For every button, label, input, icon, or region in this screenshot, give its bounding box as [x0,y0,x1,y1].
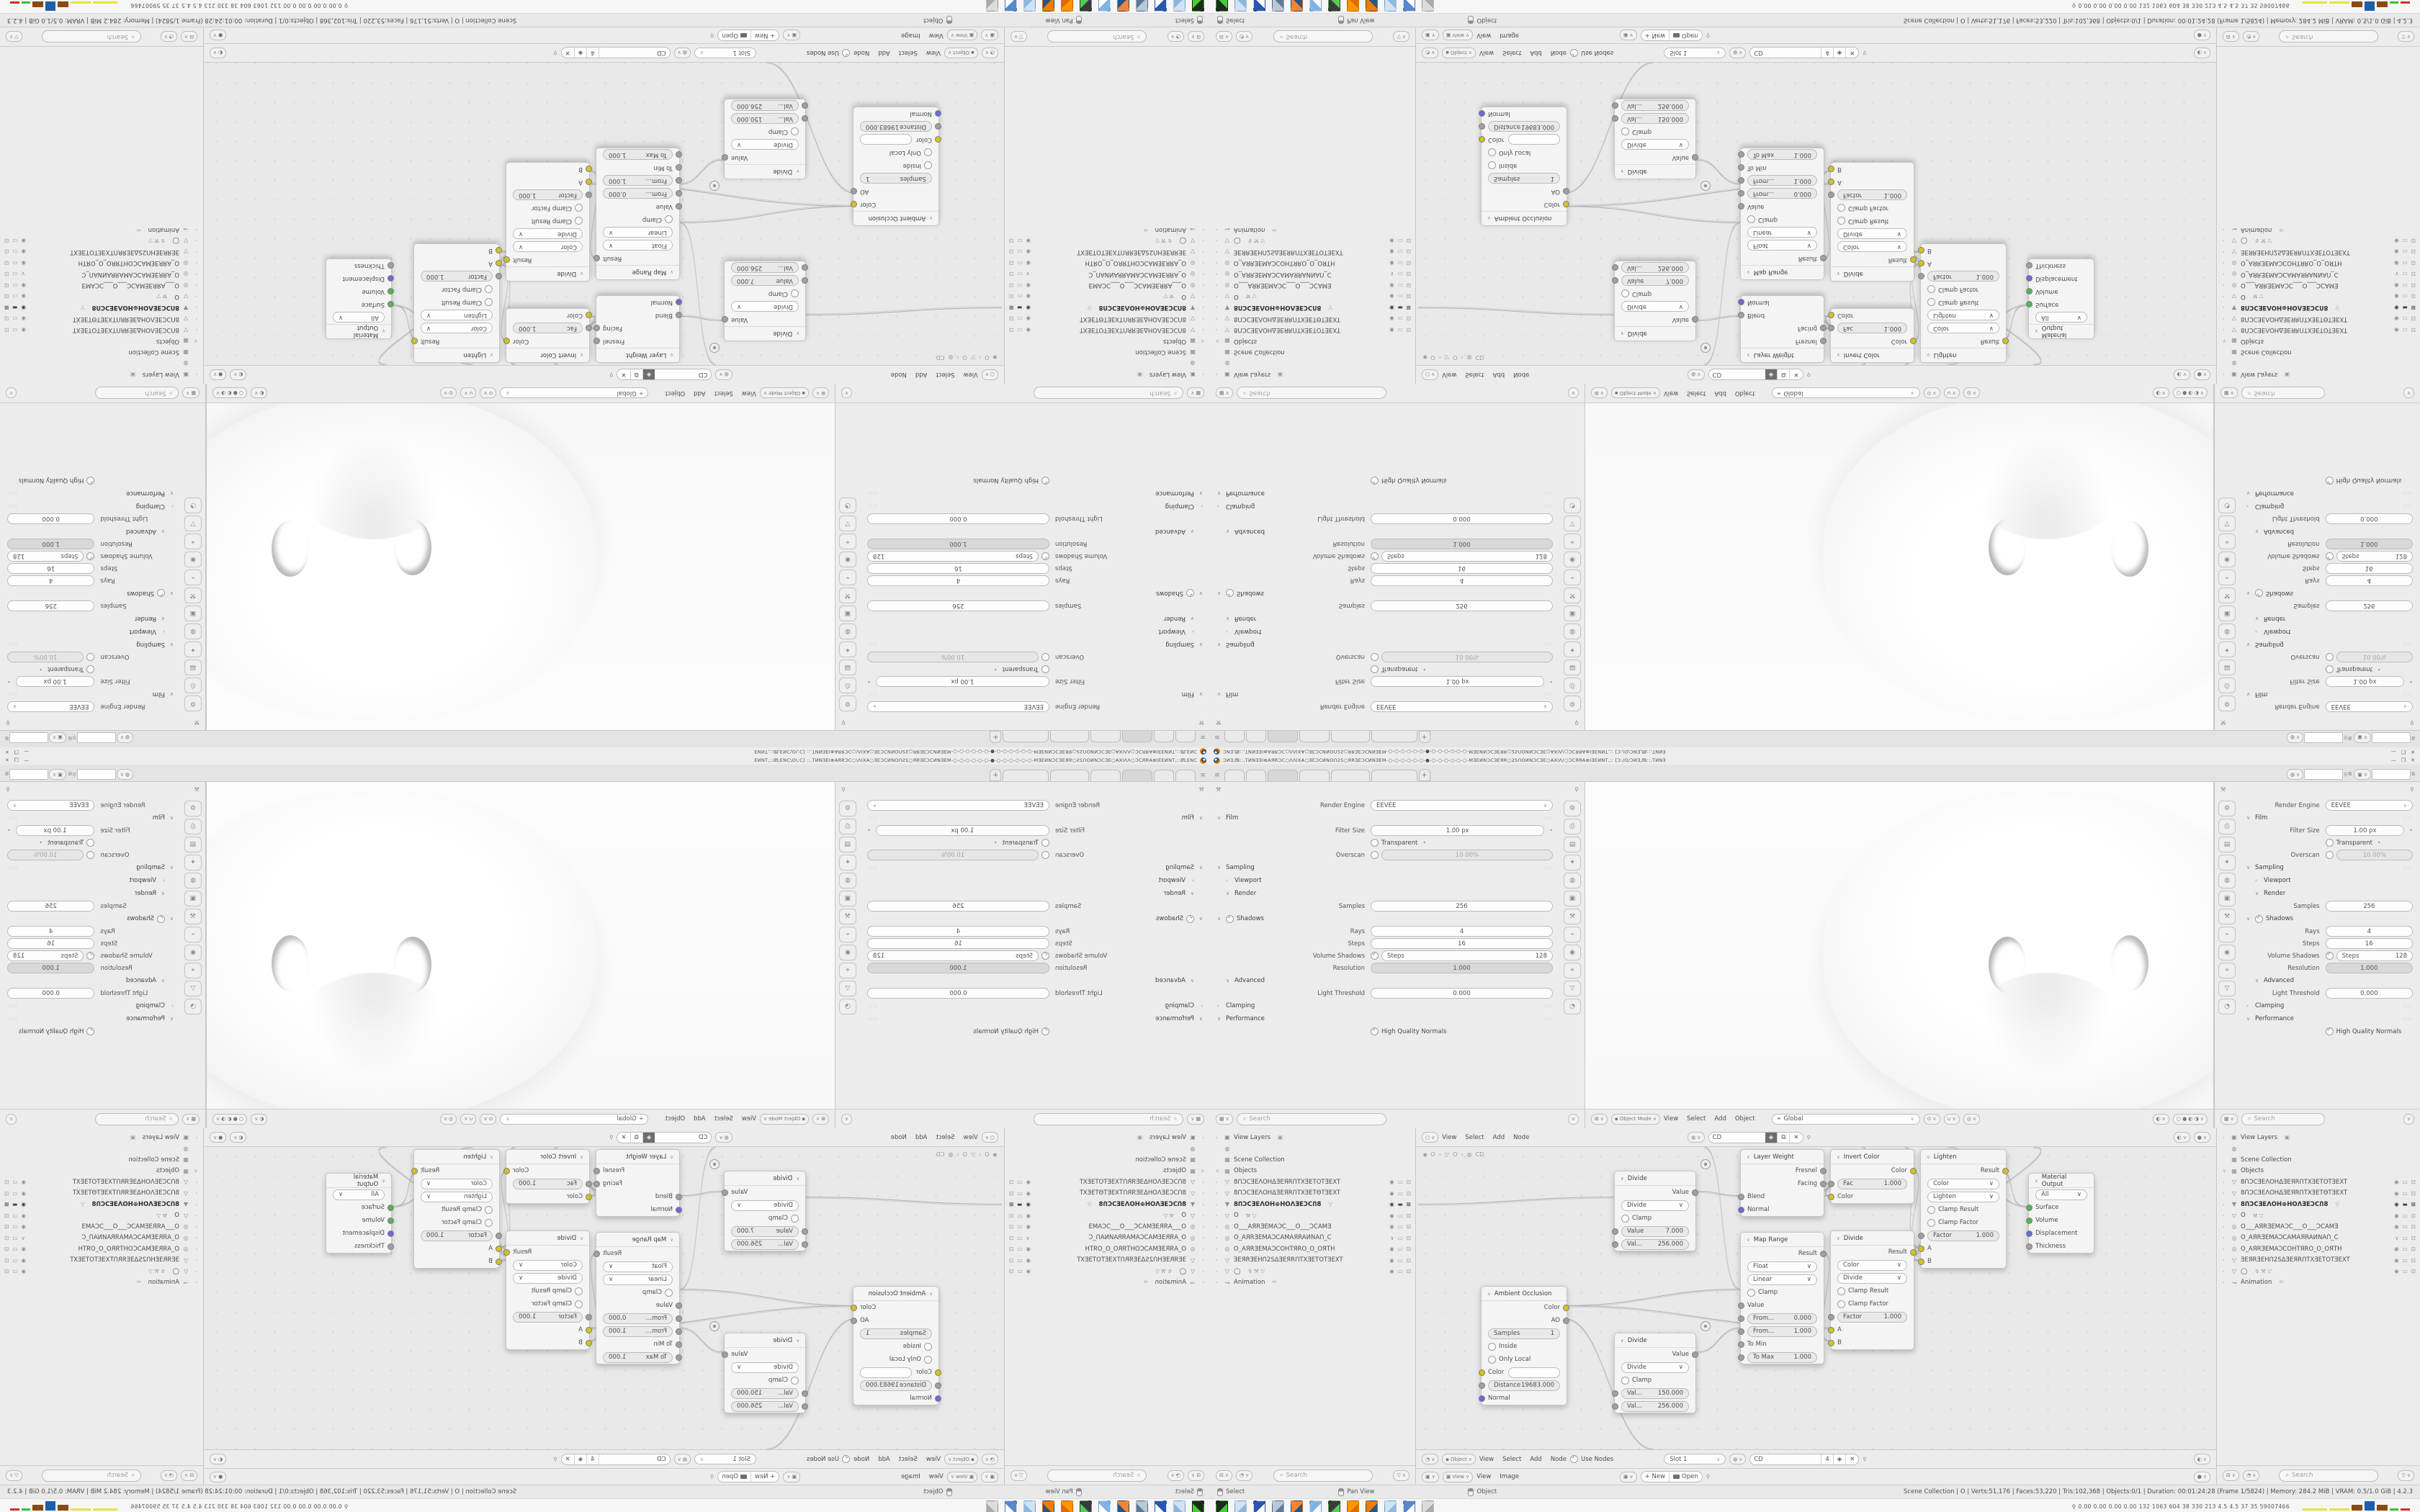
input-socket[interactable] [586,1194,592,1200]
output-socket[interactable] [593,1181,600,1187]
prop-value[interactable]: 1.000 [1371,963,1553,973]
visibility-eye-icon[interactable]: ◉ [1026,293,1031,300]
node-enum-dropdown[interactable]: Divide∨ [731,302,799,312]
outliner-row[interactable]: ›▽8ՈƆCƎEΛOHΔƎEЯRՈTXƎETΘTƎEXT◉▭⊡ [3,313,199,325]
node-mixdiv[interactable]: ∨DivideResultColor∨Divide∨Clamp ResultCl… [506,1230,590,1350]
disable-viewport-icon[interactable]: ▭ [1398,1179,1403,1185]
input-socket[interactable] [676,203,682,210]
visibility-eye-icon[interactable]: ◉ [2394,1268,2399,1274]
viewport-canvas[interactable] [1585,782,2213,1109]
properties-tab-icon-8[interactable]: ◉ [839,945,856,960]
output-socket[interactable] [1910,256,1917,263]
input-socket[interactable] [1612,1390,1618,1397]
disable-viewport-icon[interactable]: ▭ [1017,1179,1022,1185]
node-value-field[interactable]: Samples1 [860,1328,932,1339]
outliner-row[interactable]: ›▼8ՈƆCƎEΛOH⊕HOΛƎEƆCՈ8▽◉▬⊠ [2221,302,2417,314]
properties-tab-icon-7[interactable]: ⌁ [1564,570,1581,585]
overlay-dropdown[interactable]: ●∨ [2194,369,2210,380]
material-datablock[interactable]: CD ◈ ⧉ ✕ [617,369,712,381]
input-socket[interactable] [2026,262,2033,269]
disable-render-icon[interactable]: ⊡ [1407,327,1411,333]
outliner-row[interactable]: ›▽8ՈƆCƎEΛOHΔƎEЯRՈTXƎETOTƎEXT◉▭⊡ [3,325,199,336]
node-title[interactable]: ∨Divide [506,1231,589,1246]
menu-image[interactable]: Image [901,1473,920,1480]
prop-value[interactable]: 1.00 px [16,676,95,687]
properties-tab-icon-6[interactable]: ⚒ [1564,909,1581,924]
visibility-eye-icon[interactable]: ◉ [21,1246,26,1252]
viewport-object[interactable] [1823,403,2213,719]
disable-viewport-icon[interactable]: ▭ [12,293,17,300]
node-enum-dropdown[interactable]: Lighten∨ [421,1192,493,1202]
menu-add[interactable]: Add [1714,1115,1726,1122]
node-enum-dropdown[interactable]: Lighten∨ [1927,310,1999,321]
output-socket[interactable] [411,1168,418,1174]
node-checkbox[interactable]: Clamp [768,1215,799,1223]
outliner-row[interactable]: ›▽8ՈƆCƎEΛOHΔƎEЯRՈTXƎETΘTƎEXT◉▭⊡ [1214,313,1412,325]
outliner-row[interactable]: ›◎O_AЯRƎEMAƆCAMAЯRAͶNAՈ_C∨▭⊡ [1214,1233,1412,1244]
node-value-field[interactable]: From...1.000 [603,176,673,186]
checkbox[interactable] [1186,915,1194,923]
checkbox[interactable] [1371,1027,1379,1035]
visibility-eye-icon[interactable]: ◉ [1389,1246,1394,1252]
visibility-eye-icon[interactable]: ◉ [2394,238,2399,244]
node-enum-dropdown[interactable]: Divide∨ [1621,140,1689,150]
workspace-tab-4[interactable] [1331,770,1370,781]
disable-viewport-icon[interactable]: ▭ [1017,271,1022,277]
collapsed-node-nub[interactable] [709,181,720,191]
prop-value[interactable]: EEVEE∨ [2326,800,2413,811]
output-socket[interactable] [1692,316,1698,323]
overlay-dropdown[interactable]: ●∨ [210,1132,226,1143]
blender-icon[interactable] [1042,1500,1054,1512]
calculator-blue-icon[interactable] [1098,1500,1111,1512]
material-browse-dropdown[interactable]: ◍∨ [674,1454,691,1464]
input-socket[interactable] [676,1207,682,1213]
outliner-row[interactable]: ›↝Animation⁴² [1214,224,1412,235]
node-checkbox[interactable]: Inside [903,1343,932,1351]
input-socket[interactable] [1918,1259,1924,1265]
outliner-row[interactable]: ›▽ƎEЯRƎEHՈ2SΔƎEЯRՈTXƎETOTƎEXT◉▭⊡ [3,1255,199,1266]
node-value-field[interactable]: To Max1.000 [603,150,673,161]
open-image-button[interactable]: Open [718,1472,751,1482]
node-checkbox[interactable]: Clamp Result [1927,299,1978,307]
outliner-filter-mode-dropdown[interactable]: ◔∨ [2243,1470,2259,1481]
prop-value[interactable]: 0.000 [2326,988,2413,999]
input-socket[interactable] [802,277,808,284]
checkbox[interactable] [157,915,165,923]
properties-tab-icon-1[interactable]: ⎙ [839,678,856,693]
view-layer-selector[interactable]: ▣∨ ⧉ [2354,769,2415,780]
input-socket[interactable] [676,1328,682,1335]
menu-select[interactable]: Select [899,50,918,57]
visibility-eye-icon[interactable]: ◉ [1026,238,1031,244]
outliner-row[interactable]: ›▣View Layers▣ [3,369,199,381]
disable-viewport-icon[interactable]: ▭ [1017,293,1022,300]
outliner-row[interactable]: ›▽ƎEЯRƎEHՈ2SΔƎEЯRՈTXƎETOTƎEXT◉▭⊡ [1214,246,1412,258]
add-workspace-button[interactable]: + [990,769,1001,781]
menu-select[interactable]: Select [1502,50,1521,57]
overlay-dropdown[interactable]: ●∨ [210,1472,226,1482]
capture-app-icon[interactable] [1192,0,1204,12]
disable-viewport-icon[interactable]: ▭ [1398,238,1403,244]
input-socket[interactable] [802,1228,808,1235]
node-enum-dropdown[interactable]: Color∨ [421,1179,493,1189]
section-advanced[interactable]: ∨Advanced [2246,974,2413,987]
node-value-field[interactable]: Value7.000 [731,1226,799,1237]
pivot-dropdown[interactable]: ◎∨ [440,1114,457,1125]
section-advanced[interactable]: ∨Advanced [1217,525,1553,538]
scene-name-field[interactable] [77,732,116,743]
node-value-field[interactable]: Fac1.000 [1837,323,1907,334]
outliner-row[interactable]: ›▽ƎEЯRƎEHՈ2SΔƎEЯRՈTXƎETOTƎEXT◉▭⊡ [3,246,199,258]
disable-viewport-icon[interactable]: ▭ [2403,282,2408,289]
outliner-row[interactable]: ▦Scene Collection [2221,347,2417,359]
input-socket[interactable] [496,247,502,253]
node-value-field[interactable]: Factor1.000 [1927,1230,1999,1241]
visibility-eye-icon[interactable]: ∨ [1026,271,1030,277]
disable-viewport-icon[interactable]: ▭ [1398,327,1403,333]
prop-value[interactable]: 0.000 [1371,988,1553,999]
view-layer-name-field[interactable] [9,732,48,743]
visibility-eye-icon[interactable]: ◉ [1389,1268,1394,1274]
disable-render-icon[interactable]: ⊡ [4,260,9,266]
outliner-row[interactable]: ›◎O_AЯRƎEMAƆCOHTЯRO_O_OЯTH◉▭⊡ [1214,1243,1412,1255]
outliner-row[interactable]: ›▼8ՈƆCƎEΛOH⊕HOΛƎEƆCՈ8▽◉▬⊠ [2221,1199,2417,1210]
outliner-row[interactable]: ›◎O_AЯRƎEMAƆCOHTЯRO_O_OЯTH◉▭⊡ [1008,258,1206,269]
material-browse-dropdown[interactable]: ◍∨ [715,1132,732,1143]
outliner-row[interactable]: ›▽◯↯ ⚒ ▽◉▭⊡ [1214,1266,1412,1277]
outliner-row[interactable]: ›◎O_AЯRƎEMAƆCOHTЯRO_O_OЯTH◉▭⊡ [3,1243,199,1255]
editor-type-dropdown[interactable]: ○∨ [982,1132,998,1143]
node-color-field[interactable] [860,135,912,145]
outliner-row[interactable]: ›▽8ՈƆCƎEΛOHΔƎEЯRՈTXƎETOTƎEXT◉▭⊡ [2221,325,2417,336]
properties-tab-icon-5[interactable]: ▣ [184,606,202,621]
properties-tab-icon-9[interactable]: ⌖ [1564,963,1581,978]
minimize-button[interactable]: — [24,757,29,763]
input-socket[interactable] [1612,1241,1618,1248]
mode-dropdown[interactable]: ▪Object Mode∨ [760,1114,809,1125]
outliner-row[interactable]: ◍ [3,358,199,369]
disable-render-icon[interactable]: ⊡ [1407,1190,1411,1197]
fake-user-shield-icon[interactable]: ◈ [643,370,655,380]
input-socket[interactable] [676,164,682,171]
workspace-tab-4[interactable] [1050,731,1089,742]
properties-tab-icon-0[interactable]: ⚙ [2218,696,2236,711]
disable-render-icon[interactable]: ⊡ [2411,238,2416,244]
menu-select[interactable]: Select [1465,372,1484,379]
editor-type-dropdown[interactable]: ▣∨ [981,30,998,41]
outliner-row[interactable]: ›▽ƎEЯRƎEHՈ2SΔƎEЯRՈTXƎETOTƎEXT◉▭⊡ [1008,1255,1206,1266]
section-clamping[interactable]: ›Clamping:::: [1217,999,1553,1012]
blender-icon[interactable] [1117,0,1129,12]
prop-value[interactable]: 16 [1371,938,1553,949]
properties-tab-icon-3[interactable]: ✦ [184,855,202,870]
section-shadows[interactable]: ∨Shadows [867,587,1203,600]
copy-icon[interactable]: ⧉ [68,771,72,778]
scene-name-field[interactable] [77,769,116,780]
node-title[interactable]: ∨Divide [725,1171,805,1186]
visibility-eye-icon[interactable]: ◉ [1389,1201,1394,1207]
disable-render-icon[interactable]: ⊡ [4,315,9,322]
outliner-row[interactable]: ›▽O⚒ ▽◉▭⊡ [1008,291,1206,302]
transform-orientation-dropdown[interactable]: ⌖ Global∨ [500,388,648,399]
output-socket[interactable] [851,1318,857,1324]
unlink-button[interactable]: ✕ [1845,1454,1858,1464]
prop-value[interactable]: 1.00 px [876,676,1049,687]
outliner-row[interactable]: ›▣View Layers▣ [1214,1132,1412,1143]
open-image-button[interactable]: Open [1669,1472,1702,1482]
disable-render-icon[interactable]: ⊡ [4,248,9,255]
section-advanced[interactable]: ∨Advanced [867,525,1203,538]
copy-icon[interactable]: ⧉ [68,734,72,741]
prop-value[interactable]: 256 [1371,600,1553,611]
node-value-field[interactable]: From...1.000 [1747,1326,1817,1337]
menu-add[interactable]: Add [878,50,889,57]
outliner-row[interactable]: ▦Scene Collection [3,1154,199,1166]
document-viewer-icon[interactable] [1005,0,1017,12]
overlay-dropdown[interactable]: ◐∨ [210,1454,226,1464]
checkbox[interactable] [86,839,94,847]
prop-value[interactable]: 1.000 [1371,539,1553,549]
visibility-eye-icon[interactable]: ◉ [2394,1179,2399,1185]
node-title[interactable]: ∨Divide [725,326,805,341]
outliner-row[interactable]: ›◎O___AЯRƎEMAƆC___O___ƆCAMƎ◉▭⊡ [1214,1221,1412,1233]
menu-select[interactable]: Select [1687,1115,1706,1122]
properties-tab-icon-11[interactable]: ◔ [1564,999,1581,1014]
input-socket[interactable] [1738,190,1744,197]
disable-viewport-icon[interactable]: ▭ [1398,271,1403,277]
blender-icon[interactable] [1366,0,1378,12]
input-socket[interactable] [1738,312,1744,318]
section-render[interactable]: ∨Render [867,887,1203,900]
properties-tab-icon-11[interactable]: ◔ [839,498,856,513]
prop-value[interactable]: 0.000 [7,513,94,524]
node-enum-dropdown[interactable]: Color∨ [513,1260,583,1271]
prop-value[interactable]: 16 [867,938,1049,949]
outliner-row[interactable]: ›▽8ՈƆCƎEΛOHΔƎEЯRՈTXƎETOTƎEXT◉▭⊡ [1214,1176,1412,1188]
input-socket[interactable] [387,262,394,269]
output-socket[interactable] [722,154,728,161]
outliner-row[interactable]: ∨▦Objects [1214,1166,1412,1177]
menu-add[interactable]: Add [694,390,705,397]
properties-tab-icon-7[interactable]: ⌁ [839,927,856,942]
prop-value[interactable]: 0.000 [1371,513,1553,524]
properties-tab-icon-8[interactable]: ◉ [184,945,202,960]
properties-tab-icon-3[interactable]: ✦ [2218,642,2236,657]
pin-icon[interactable]: ⚲ [1863,50,1866,56]
disable-render-icon[interactable]: ⊠ [4,305,9,311]
properties-tab-icon-1[interactable]: ⎙ [2218,819,2236,834]
node-inv[interactable]: ∨Invert ColorColorFac1.000Color [1830,1149,1914,1204]
properties-tab-icon-7[interactable]: ⌁ [839,570,856,585]
slot-dropdown[interactable]: Slot 1∨ [694,48,756,58]
outliner-row[interactable]: ›▽ƎEЯRƎEHՈ2SΔƎEЯRՈTXƎETOTƎEXT◉▭⊡ [2221,1255,2417,1266]
prop-value[interactable]: Steps128 [867,950,1039,961]
outliner-display-mode-dropdown[interactable]: ⊟∨ [1188,1470,1204,1481]
properties-tab-icon-9[interactable]: ⌖ [2218,963,2236,978]
outliner-funnel-dropdown[interactable]: ▽∨ [6,1470,22,1481]
disable-viewport-icon[interactable]: ▭ [1398,1246,1403,1252]
visibility-eye-icon[interactable]: ◉ [1026,1246,1031,1252]
properties-tab-icon-10[interactable]: ▽ [1564,516,1581,531]
blender-icon[interactable] [1366,1500,1378,1512]
disable-viewport-icon[interactable]: ▭ [2403,1235,2408,1241]
properties-tab-icon-5[interactable]: ▣ [2218,891,2236,906]
disable-viewport-icon[interactable]: ▬ [1017,305,1022,311]
node-title[interactable]: ∨Divide [1615,1333,1695,1348]
disable-viewport-icon[interactable]: ▭ [1017,1223,1022,1230]
outliner-row[interactable]: ›▽O⚒ ▽◉▭⊡ [1214,291,1412,302]
menu-object[interactable]: Object [665,1115,685,1122]
input-socket[interactable] [1479,136,1485,143]
node-div2[interactable]: ∨DivideValueDivide∨ClampVal...150.000Val… [1614,99,1696,179]
material-browse-dropdown[interactable]: ◍∨ [674,48,691,58]
disable-viewport-icon[interactable]: ▭ [12,1235,17,1241]
input-socket[interactable] [802,1390,808,1397]
disable-render-icon[interactable]: ⊡ [2411,1179,2416,1185]
output-socket[interactable] [1692,1351,1698,1358]
prop-value[interactable]: Steps128 [7,950,84,961]
disable-viewport-icon[interactable]: ▭ [1017,1190,1022,1197]
overlay-dropdown[interactable]: ●∨ [2194,1132,2210,1143]
node-title[interactable]: ∨Material Output [326,324,391,338]
pin-icon[interactable]: ⚲ [1807,372,1811,378]
outliner-row[interactable]: ›▽◯↯ ⚒ ▽◉▭⊡ [1214,235,1412,247]
outliner-row[interactable]: ›◎O___AЯRƎEMAƆC___O___ƆCAMƎ◉▭⊡ [3,280,199,292]
section-shadows[interactable]: ∨Shadows [2246,587,2413,600]
visibility-eye-icon[interactable]: ◉ [21,1201,26,1207]
properties-tab-icon-1[interactable]: ⎙ [184,819,202,834]
node-value-field[interactable]: Factor1.000 [421,271,493,282]
menu-node[interactable]: Node [891,372,907,379]
outliner-row[interactable]: ›◎O_AЯRƎEMAƆCOHTЯRO_O_OЯTH◉▭⊡ [3,258,199,269]
editor-type-dropdown[interactable]: ◔∨ [982,1454,998,1464]
visibility-eye-icon[interactable]: ∨ [1026,1235,1030,1241]
outliner-display-mode-dropdown[interactable]: ⊟∨ [181,32,197,42]
node-enum-dropdown[interactable]: Linear∨ [1747,1274,1817,1285]
input-socket[interactable] [676,151,682,158]
slot-dropdown[interactable]: Slot 1∨ [694,1454,756,1464]
node-value-field[interactable]: From...0.000 [603,189,673,199]
output-socket[interactable] [1820,338,1827,344]
visibility-eye-icon[interactable]: ◉ [1026,305,1031,311]
disable-viewport-icon[interactable]: ▬ [1398,305,1403,311]
node-title[interactable]: ∨Ambient Occlusion [853,211,938,225]
disable-viewport-icon[interactable]: ▭ [1017,1268,1022,1274]
disable-viewport-icon[interactable]: ▭ [1017,1246,1022,1252]
open-image-button[interactable]: Open [1669,30,1702,40]
section-sampling[interactable]: ∨Sampling:::: [867,861,1203,874]
magnet-icon[interactable]: ∪∨ [1944,1114,1960,1125]
overlay-dropdown[interactable]: ●∨ [2194,30,2210,41]
properties-tab-icon-1[interactable]: ⎙ [1564,678,1581,693]
outliner-row[interactable]: ∨▦Objects [3,336,199,347]
prop-value[interactable]: 256 [1371,901,1553,912]
outliner-row[interactable]: ◍ [2221,358,2417,369]
disable-render-icon[interactable]: ⊡ [4,1179,9,1185]
outliner-row[interactable]: ▦Scene Collection [1214,1154,1412,1166]
pin-icon[interactable]: ⚲ [6,720,10,726]
pivot-dropdown[interactable]: ◎∨ [1963,1114,1980,1125]
disable-render-icon[interactable]: ⊡ [1407,1212,1411,1219]
editor-type-dropdown[interactable]: ○∨ [982,369,998,380]
menu-select[interactable]: Select [936,1134,954,1141]
input-socket[interactable] [676,1194,682,1200]
prop-value[interactable]: Steps128 [867,551,1039,562]
copy-icon[interactable]: ⧉ [1777,370,1789,380]
notepad-icon[interactable] [1023,0,1036,12]
properties-tab-icon-0[interactable]: ⚙ [839,696,856,711]
prop-value[interactable]: EEVEE∨ [7,800,94,811]
properties-tab-icon-9[interactable]: ⌖ [184,534,202,549]
outliner-row[interactable]: ›▼8ՈƆCƎEΛOH⊕HOΛƎEƆCՈ8▽◉▬⊠ [1214,302,1412,314]
visibility-eye-icon[interactable]: ◉ [2394,327,2399,333]
workspace-tab-5[interactable] [1003,731,1049,742]
node-value-field[interactable]: Value7.000 [731,276,799,287]
pin-icon[interactable]: ⚲ [609,372,613,378]
node-value-field[interactable]: Factor1.000 [421,1230,493,1241]
disable-render-icon[interactable]: ⊡ [2411,1268,2416,1274]
output-socket[interactable] [1910,1168,1917,1174]
properties-tab-icon-4[interactable]: ◍ [1564,624,1581,639]
shading-mode-buttons[interactable]: ○ ● ◐ ◑∨ [212,1114,247,1125]
properties-tab-icon-7[interactable]: ⌁ [2218,927,2236,942]
notepad-icon[interactable] [1173,0,1186,12]
node-checkbox[interactable]: Clamp Factor [1927,286,1978,294]
notepad-icon[interactable] [1023,1500,1036,1512]
outliner-row[interactable]: ›▽8ՈƆCƎEΛOHΔƎEЯRՈTXƎETOTƎEXT◉▭⊡ [1214,325,1412,336]
outliner-row[interactable]: ›▽O⚒ ▽◉▭⊡ [3,1210,199,1222]
material-datablock[interactable]: CD 4 ◈ ✕ [1749,1454,1859,1465]
properties-context-dropdown[interactable]: ▦∨ [1216,388,1233,399]
node-out[interactable]: ∨Material OutputAll∨SurfaceVolumeDisplac… [326,258,392,339]
output-socket[interactable] [722,1351,728,1358]
outliner-row[interactable]: ›▽ƎEЯRƎEHՈ2SΔƎEЯRՈTXƎETOTƎEXT◉▭⊡ [1214,1255,1412,1266]
disable-render-icon[interactable]: ⊡ [4,1268,9,1274]
workspace-tab-1[interactable] [1246,770,1266,781]
section-shadows[interactable]: ∨Shadows [867,912,1203,925]
input-socket[interactable] [2026,301,2033,307]
disable-viewport-icon[interactable]: ▭ [1017,1235,1022,1241]
section-performance[interactable]: ∨Performance:::: [7,487,174,500]
visibility-eye-icon[interactable]: ◉ [1389,315,1394,322]
editor-type-dropdown[interactable]: ▣∨ [1422,1472,1439,1482]
outliner-row[interactable]: ›◎O_AЯRƎEMAƆCOHTЯRO_O_OЯTH◉▭⊡ [2221,258,2417,269]
node-checkbox[interactable]: Inside [1488,1343,1517,1351]
section-clamping[interactable]: ›Clamping:::: [2246,500,2413,513]
use-nodes-checkbox[interactable]: Use Nodes [1570,1455,1613,1463]
outliner-row[interactable]: ›◎O_AЯRƎEMAƆCOHTЯRO_O_OЯTH◉▭⊡ [1008,1243,1206,1255]
node-ao[interactable]: ∨Ambient OcclusionColorAOSamples1InsideO… [853,1286,939,1405]
properties-tab-icon-6[interactable]: ⚒ [2218,909,2236,924]
checkbox[interactable] [1371,665,1379,673]
checkbox[interactable] [1371,851,1379,859]
node-lw[interactable]: ∨Layer WeightFresnelFacingBlendNormal [1740,295,1824,363]
visibility-eye-icon[interactable]: ◉ [2394,305,2399,311]
input-socket[interactable] [1828,192,1834,198]
checkbox[interactable] [1041,839,1049,847]
section-performance[interactable]: ∨Performance:::: [867,1012,1203,1025]
section-advanced[interactable]: ∨Advanced [1217,974,1553,987]
menu-select[interactable]: Select [1502,1456,1521,1463]
new-image-button[interactable]: + New [751,1472,779,1482]
properties-tab-icon-0[interactable]: ⚙ [2218,801,2236,816]
pin-icon[interactable]: ⚲ [710,32,714,38]
outliner-row[interactable]: ›▽8ՈƆCƎEΛOHΔƎEЯRՈTXƎETOTƎEXT◉▭⊡ [2221,1176,2417,1188]
outliner-row[interactable]: ∨▦Objects [1214,336,1412,347]
properties-tab-icon-11[interactable]: ◔ [839,999,856,1014]
node-value-field[interactable]: Val...256.000 [1621,1401,1689,1412]
